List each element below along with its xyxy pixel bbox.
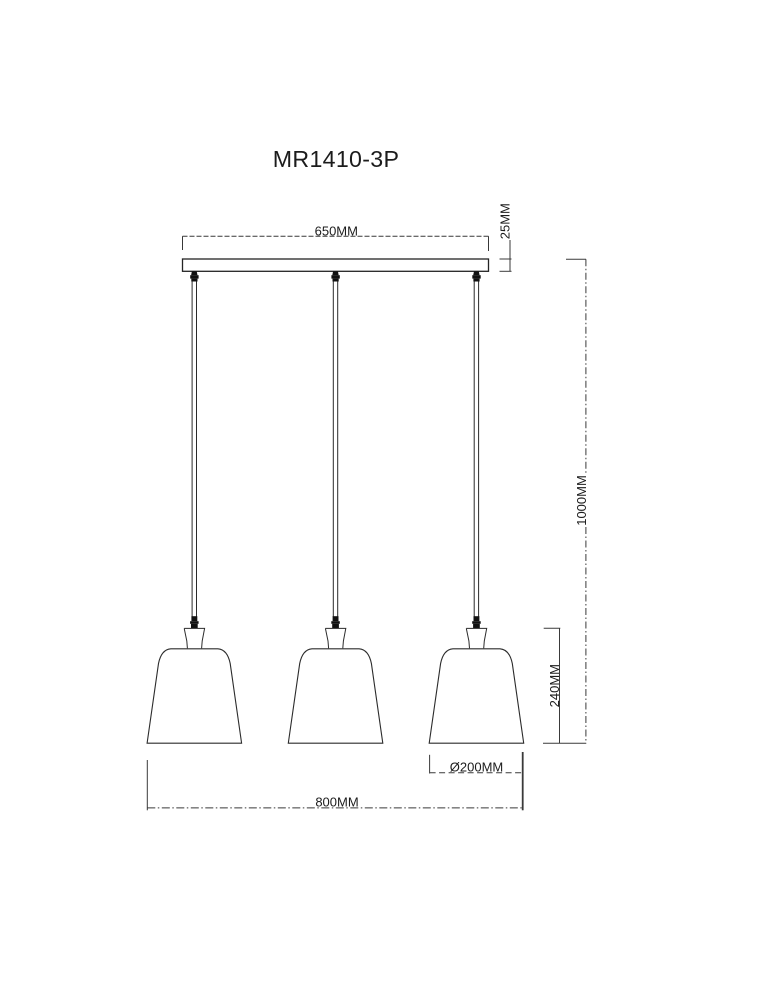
svg-text:800MM: 800MM [315,795,358,810]
svg-text:MR1410-3P: MR1410-3P [273,146,399,172]
svg-text:25MM: 25MM [498,203,513,239]
svg-text:240MM: 240MM [547,664,562,707]
svg-text:650MM: 650MM [315,223,358,238]
svg-text:1000MM: 1000MM [574,475,589,526]
svg-text:Ø200MM: Ø200MM [450,759,503,774]
